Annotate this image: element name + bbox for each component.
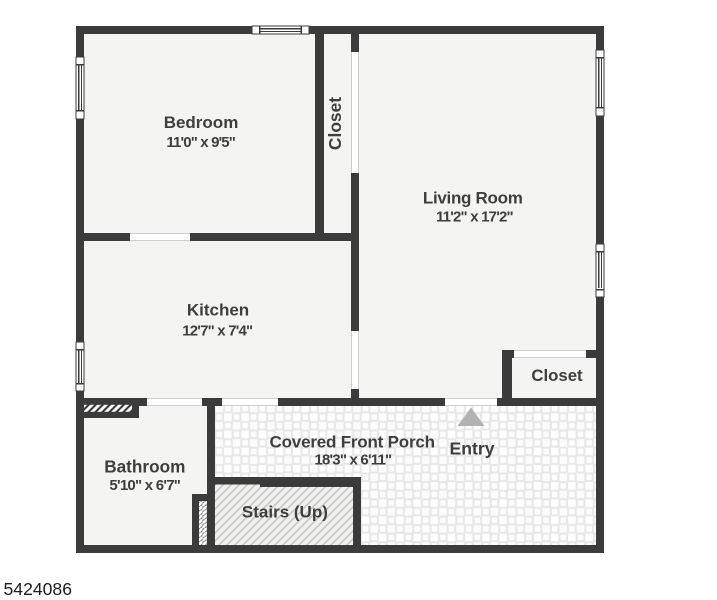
svg-text:Bathroom: Bathroom bbox=[104, 457, 185, 477]
svg-text:Covered Front Porch: Covered Front Porch bbox=[270, 432, 435, 451]
svg-text:18'3" x 6'11": 18'3" x 6'11" bbox=[314, 452, 392, 469]
svg-text:Kitchen: Kitchen bbox=[187, 300, 249, 319]
svg-text:Living Room: Living Room bbox=[423, 189, 523, 208]
svg-text:5424086: 5424086 bbox=[4, 579, 73, 599]
svg-text:Bedroom: Bedroom bbox=[164, 113, 239, 132]
svg-text:Stairs (Up): Stairs (Up) bbox=[242, 503, 328, 522]
svg-text:Closet: Closet bbox=[325, 97, 345, 150]
svg-text:12'7" x 7'4": 12'7" x 7'4" bbox=[182, 322, 253, 339]
svg-text:11'0" x 9'5": 11'0" x 9'5" bbox=[166, 134, 235, 151]
svg-text:Entry: Entry bbox=[450, 439, 495, 459]
svg-text:Closet: Closet bbox=[531, 366, 583, 385]
svg-text:11'2" x 17'2": 11'2" x 17'2" bbox=[436, 209, 514, 226]
svg-text:5'10" x 6'7": 5'10" x 6'7" bbox=[109, 477, 180, 494]
